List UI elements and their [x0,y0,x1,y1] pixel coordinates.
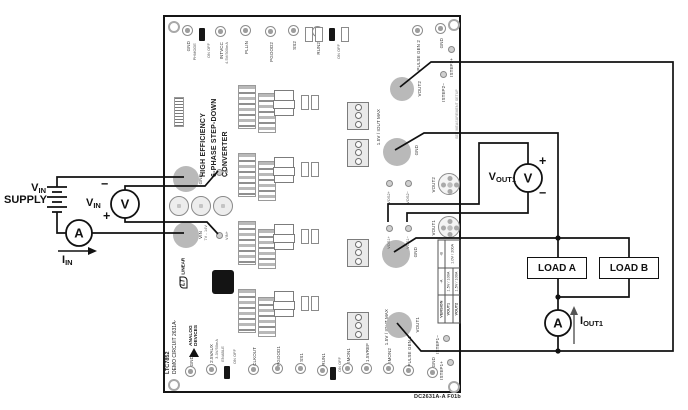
vin-supply-label-line2: SUPPLY [4,194,46,206]
wire-gnd1-to-node [394,238,558,252]
vout1-meter-plus-sign: + [539,154,546,168]
wire-loads-to-ammeter [558,279,629,310]
iin-arrowhead-icon [88,247,97,255]
vout1-meter-label: VOUT1 [478,171,516,184]
vin-meter-minus-sign: − [101,177,108,191]
vout1-meter-minus-sign: − [539,186,546,200]
wire-vout2-rail [397,62,673,351]
battery-icon [47,187,67,212]
junction-dot [555,294,560,299]
figure-caption: DC2631A-A F01b [414,394,461,400]
load-b-box: LOAD B [599,257,659,279]
vin-meter-label: VIN [86,197,101,210]
junction-dot [555,235,560,240]
iout1-arrowhead-icon [570,306,578,315]
wire-supply-to-ammeter [57,212,66,233]
iout1-label: IOUT1 [580,315,603,328]
iout1-ammeter-letter: A [553,316,563,331]
wire-vinmeter-plus [125,218,218,234]
junction-dot [555,348,560,353]
wire-node-to-loads [558,238,629,257]
load-a-box: LOAD A [527,257,587,279]
figure-canvas: GND PHMODE ON OFF INTVCC 4.5V/500mA PLLI… [0,0,688,410]
vin-voltmeter-letter: V [121,197,130,212]
wire-vos1m-to-meter [407,192,528,222]
wire-vinmeter-minus [125,171,218,190]
vin-meter-plus-sign: + [103,209,110,223]
iin-label: IIN [62,254,73,267]
vout1-voltmeter-letter: V [524,171,533,186]
schematic-wires: V A V A [0,0,688,410]
iin-ammeter-letter: A [74,226,84,241]
